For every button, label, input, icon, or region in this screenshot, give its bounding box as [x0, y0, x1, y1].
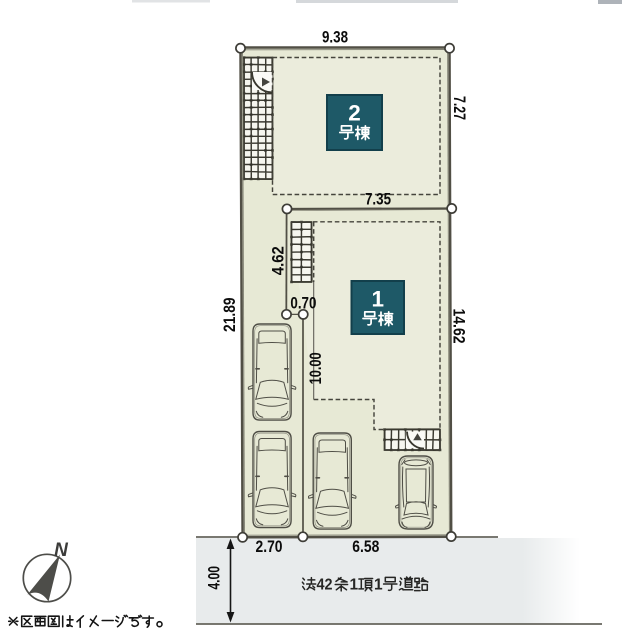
svg-text:4.00: 4.00	[206, 566, 224, 590]
svg-text:2: 2	[348, 101, 361, 126]
svg-text:7.27: 7.27	[450, 96, 468, 120]
svg-text:6.58: 6.58	[352, 538, 379, 556]
svg-text:2.70: 2.70	[256, 538, 283, 556]
svg-text:0.70: 0.70	[290, 294, 316, 312]
svg-text:21.89: 21.89	[221, 297, 239, 332]
svg-text:10.00: 10.00	[307, 352, 325, 384]
svg-text:1: 1	[371, 287, 384, 312]
svg-text:1: 1	[374, 577, 383, 594]
svg-text:9.38: 9.38	[322, 28, 348, 46]
svg-text:N: N	[54, 540, 69, 561]
svg-text:7.35: 7.35	[365, 190, 391, 208]
svg-text:42: 42	[317, 577, 333, 594]
svg-text:1: 1	[350, 577, 359, 594]
svg-text:14.62: 14.62	[450, 309, 468, 344]
svg-text:4.62: 4.62	[269, 246, 287, 275]
